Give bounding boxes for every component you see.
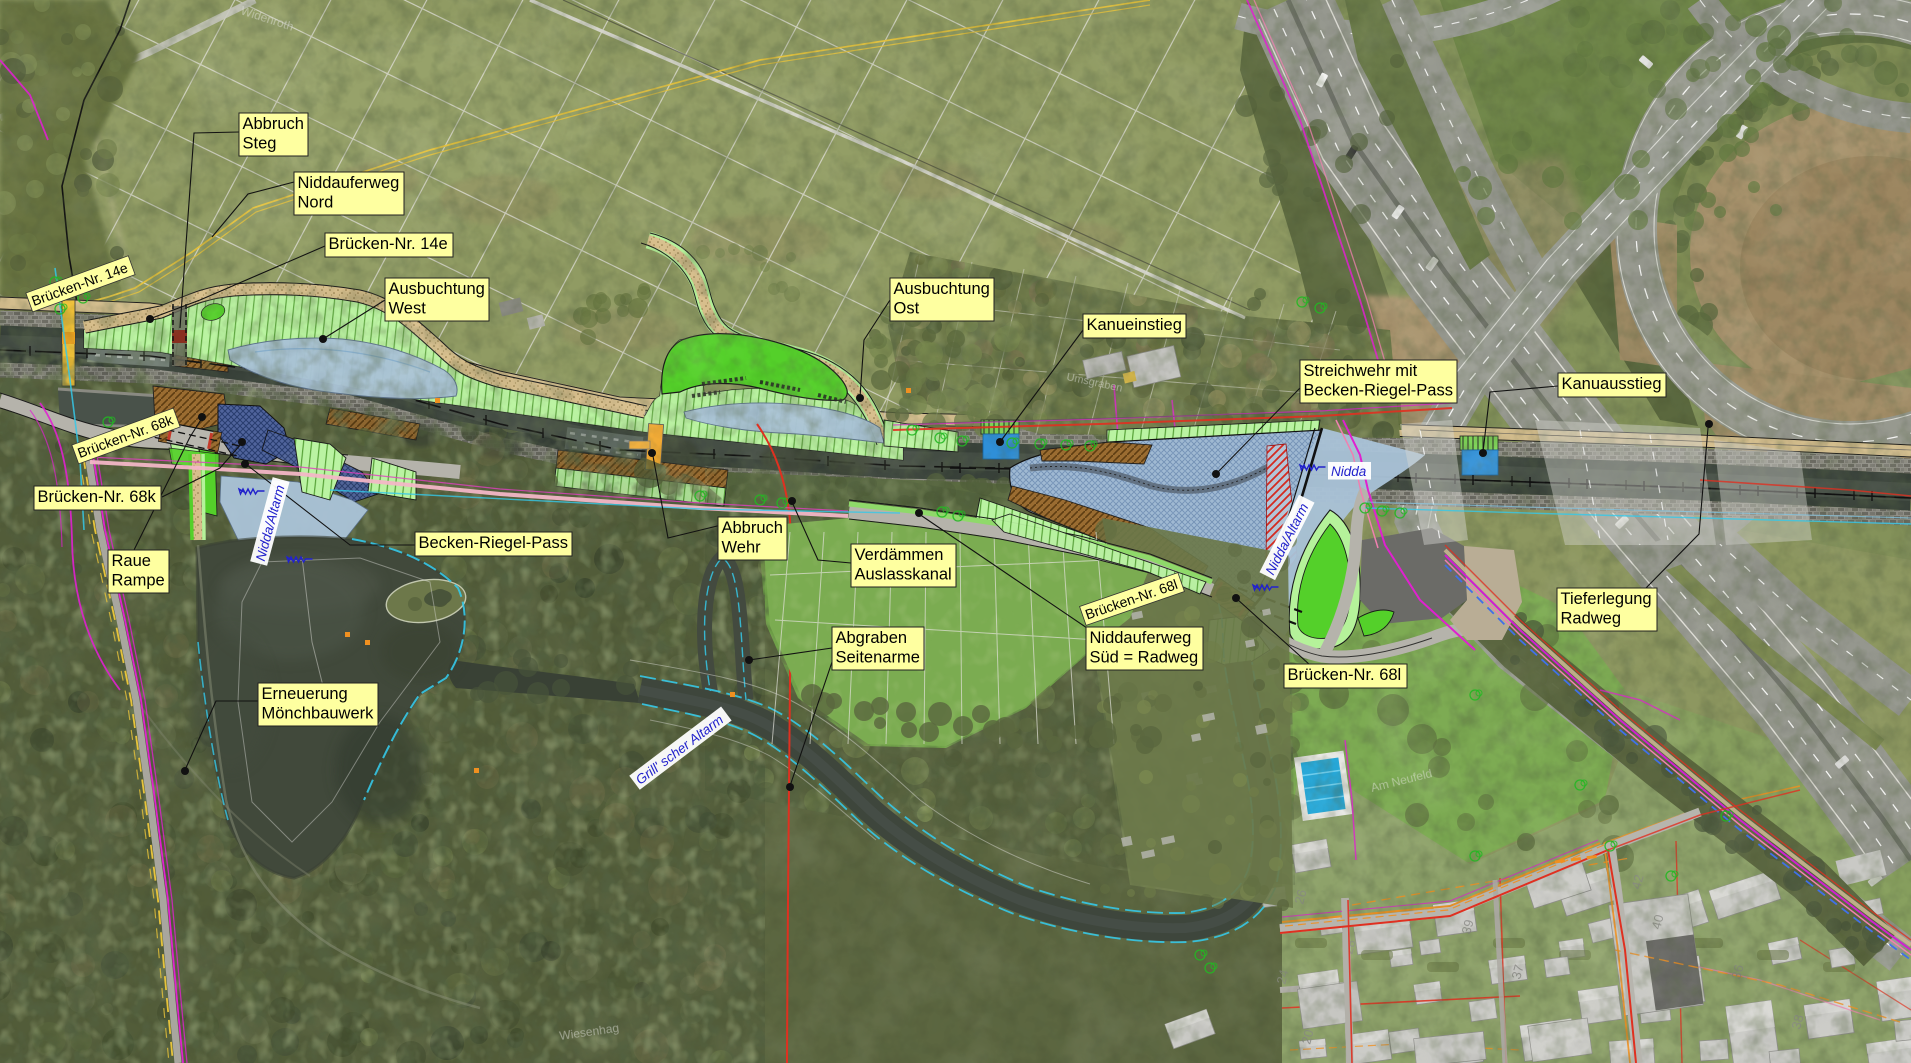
svg-text:Raue: Raue <box>112 552 151 570</box>
svg-text:Seitenarme: Seitenarme <box>836 649 920 667</box>
svg-text:Mönchbauwerk: Mönchbauwerk <box>262 705 375 723</box>
svg-text:Süd = Radweg: Süd = Radweg <box>1090 649 1199 667</box>
svg-text:Niddauferweg: Niddauferweg <box>1090 629 1192 647</box>
svg-text:Becken-Riegel-Pass: Becken-Riegel-Pass <box>1304 382 1453 400</box>
svg-text:Brücken-Nr. 68k: Brücken-Nr. 68k <box>38 488 157 506</box>
svg-text:Streichwehr mit: Streichwehr mit <box>1304 362 1418 380</box>
svg-text:Wehr: Wehr <box>722 539 762 557</box>
svg-text:Verdämmen: Verdämmen <box>855 546 944 564</box>
svg-text:Becken-Riegel-Pass: Becken-Riegel-Pass <box>419 534 568 552</box>
svg-text:Kanueinstieg: Kanueinstieg <box>1087 316 1182 334</box>
svg-text:Nord: Nord <box>298 194 334 212</box>
svg-text:Brücken-Nr. 68l: Brücken-Nr. 68l <box>1288 666 1402 684</box>
svg-text:Steg: Steg <box>243 135 277 153</box>
svg-text:Erneuerung: Erneuerung <box>262 685 348 703</box>
svg-text:Nidda: Nidda <box>1331 464 1367 479</box>
svg-text:Abbruch: Abbruch <box>243 115 304 133</box>
svg-text:Ausbuchtung: Ausbuchtung <box>894 280 990 298</box>
svg-text:Abgraben: Abgraben <box>836 629 908 647</box>
svg-text:Ausbuchtung: Ausbuchtung <box>389 280 485 298</box>
svg-text:Auslasskanal: Auslasskanal <box>855 566 952 584</box>
svg-text:Abbruch: Abbruch <box>722 519 783 537</box>
svg-text:Tieferlegung: Tieferlegung <box>1561 590 1652 608</box>
svg-text:Radweg: Radweg <box>1561 610 1622 628</box>
svg-text:West: West <box>389 300 427 318</box>
svg-text:Ost: Ost <box>894 300 920 318</box>
svg-text:Kanuausstieg: Kanuausstieg <box>1562 375 1662 393</box>
svg-text:Niddauferweg: Niddauferweg <box>298 174 400 192</box>
svg-text:Brücken-Nr. 14e: Brücken-Nr. 14e <box>329 235 448 253</box>
svg-text:Rampe: Rampe <box>112 572 165 590</box>
